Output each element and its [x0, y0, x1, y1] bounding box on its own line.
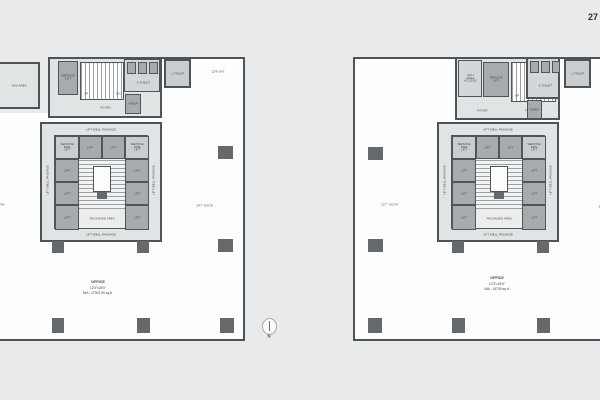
caption-dims: 12'3"x24'6" [470, 283, 525, 286]
compass-needle-icon [269, 321, 271, 331]
passage-label-right: LIFT WELL PASSAGE [549, 165, 552, 195]
column [452, 241, 464, 253]
packaged-area-label: PACKAGED AREA [486, 218, 511, 221]
stair-up-label: UP [515, 95, 519, 98]
column [537, 318, 550, 333]
column [368, 239, 383, 252]
right-riser: RISER [527, 100, 542, 119]
lift-shaft: LIFT [452, 205, 476, 230]
column [368, 147, 383, 160]
floorplan-sheet: AHU AREA SERVICE LIFT UP DN FOYER A.TOIL… [0, 0, 600, 400]
caption-title: OFFICE [466, 277, 528, 281]
service-lift-shaft: SERVICE FIRE LIFT [522, 136, 546, 159]
shaft-label: LIFT [484, 146, 490, 149]
core-stair-landing [494, 192, 504, 199]
riser-label: RISER [530, 108, 539, 111]
compass-north: N [262, 318, 276, 346]
floor-plan-right: AHU AREA ACCESS SERVICE LIFT UP DN FOYER… [0, 0, 600, 400]
sheet-number: 27 [588, 12, 600, 22]
shaft-label: LIFT [531, 192, 537, 195]
toilet-cubicle [530, 61, 539, 73]
shaft-label: LIFT [461, 216, 467, 219]
shaft-label: LIFT [461, 169, 467, 172]
shaft-label: LIFT [531, 169, 537, 172]
toilet-cubicle [552, 61, 560, 73]
foyer-label: FOYER [477, 110, 487, 113]
dim-text: 22'7" S/O"W [382, 204, 399, 207]
right-caption: OFFICE 12'3"x24'6" NIA : 16730 sq.ft. [447, 276, 547, 293]
right-dim-left: 22'7" S/O"W [368, 201, 412, 209]
lift-shaft: LIFT [522, 182, 546, 205]
right-service-lift: SERVICE LIFT [483, 62, 509, 97]
core-stair-lobby [490, 166, 508, 192]
shaft-label: LIFT [461, 192, 467, 195]
right-foyer-1: FOYER [457, 106, 507, 116]
lift-shaft: LIFT [452, 182, 476, 205]
column [368, 318, 382, 333]
lift-shaft: LIFT [476, 136, 499, 159]
shaft-label: SERVICE FIRE LIFT [457, 143, 470, 152]
right-toilet-l-room: L.TOILET [564, 59, 591, 88]
passage-label-top: LIFT WELL PASSAGE [483, 128, 513, 131]
toilet-a-label: A.TOILET [538, 85, 551, 88]
caption-area: NIA : 16730 sq.ft. [470, 289, 525, 292]
ahu-access-label: AHU AREA ACCESS [464, 74, 476, 83]
lift-shaft: LIFT [499, 136, 522, 159]
column [452, 318, 465, 333]
toilet-cubicle [541, 61, 550, 73]
right-lift-core: LIFT WELL PASSAGE LIFT WELL PASSAGE LIFT… [437, 122, 559, 242]
right-toilet-block: A.TOILET [526, 57, 560, 99]
compass-n-label: N [266, 335, 273, 339]
column [537, 241, 549, 253]
shaft-label: LIFT [507, 146, 513, 149]
lift-shaft: LIFT [452, 159, 476, 182]
right-ahu-access: AHU AREA ACCESS [458, 60, 482, 97]
shaft-label: SERVICE FIRE LIFT [527, 143, 540, 152]
service-fire-lift-shaft: SERVICE FIRE LIFT [452, 136, 476, 159]
service-lift-label: SERVICE LIFT [489, 77, 502, 83]
compass-circle [262, 318, 277, 335]
passage-label-bottom: LIFT WELL PASSAGE [483, 233, 513, 236]
right-dim-right: 34'7" [590, 203, 600, 211]
toilet-l-label: L.TOILET [571, 72, 584, 75]
lift-shaft: LIFT [522, 159, 546, 182]
shaft-label: LIFT [531, 216, 537, 219]
lift-shaft: LIFT [522, 205, 546, 230]
passage-label-left: LIFT WELL PASSAGE [443, 165, 446, 195]
right-shaft-box: SERVICE FIRE LIFT LIFT LIFT SERVICE FIRE… [451, 135, 545, 229]
